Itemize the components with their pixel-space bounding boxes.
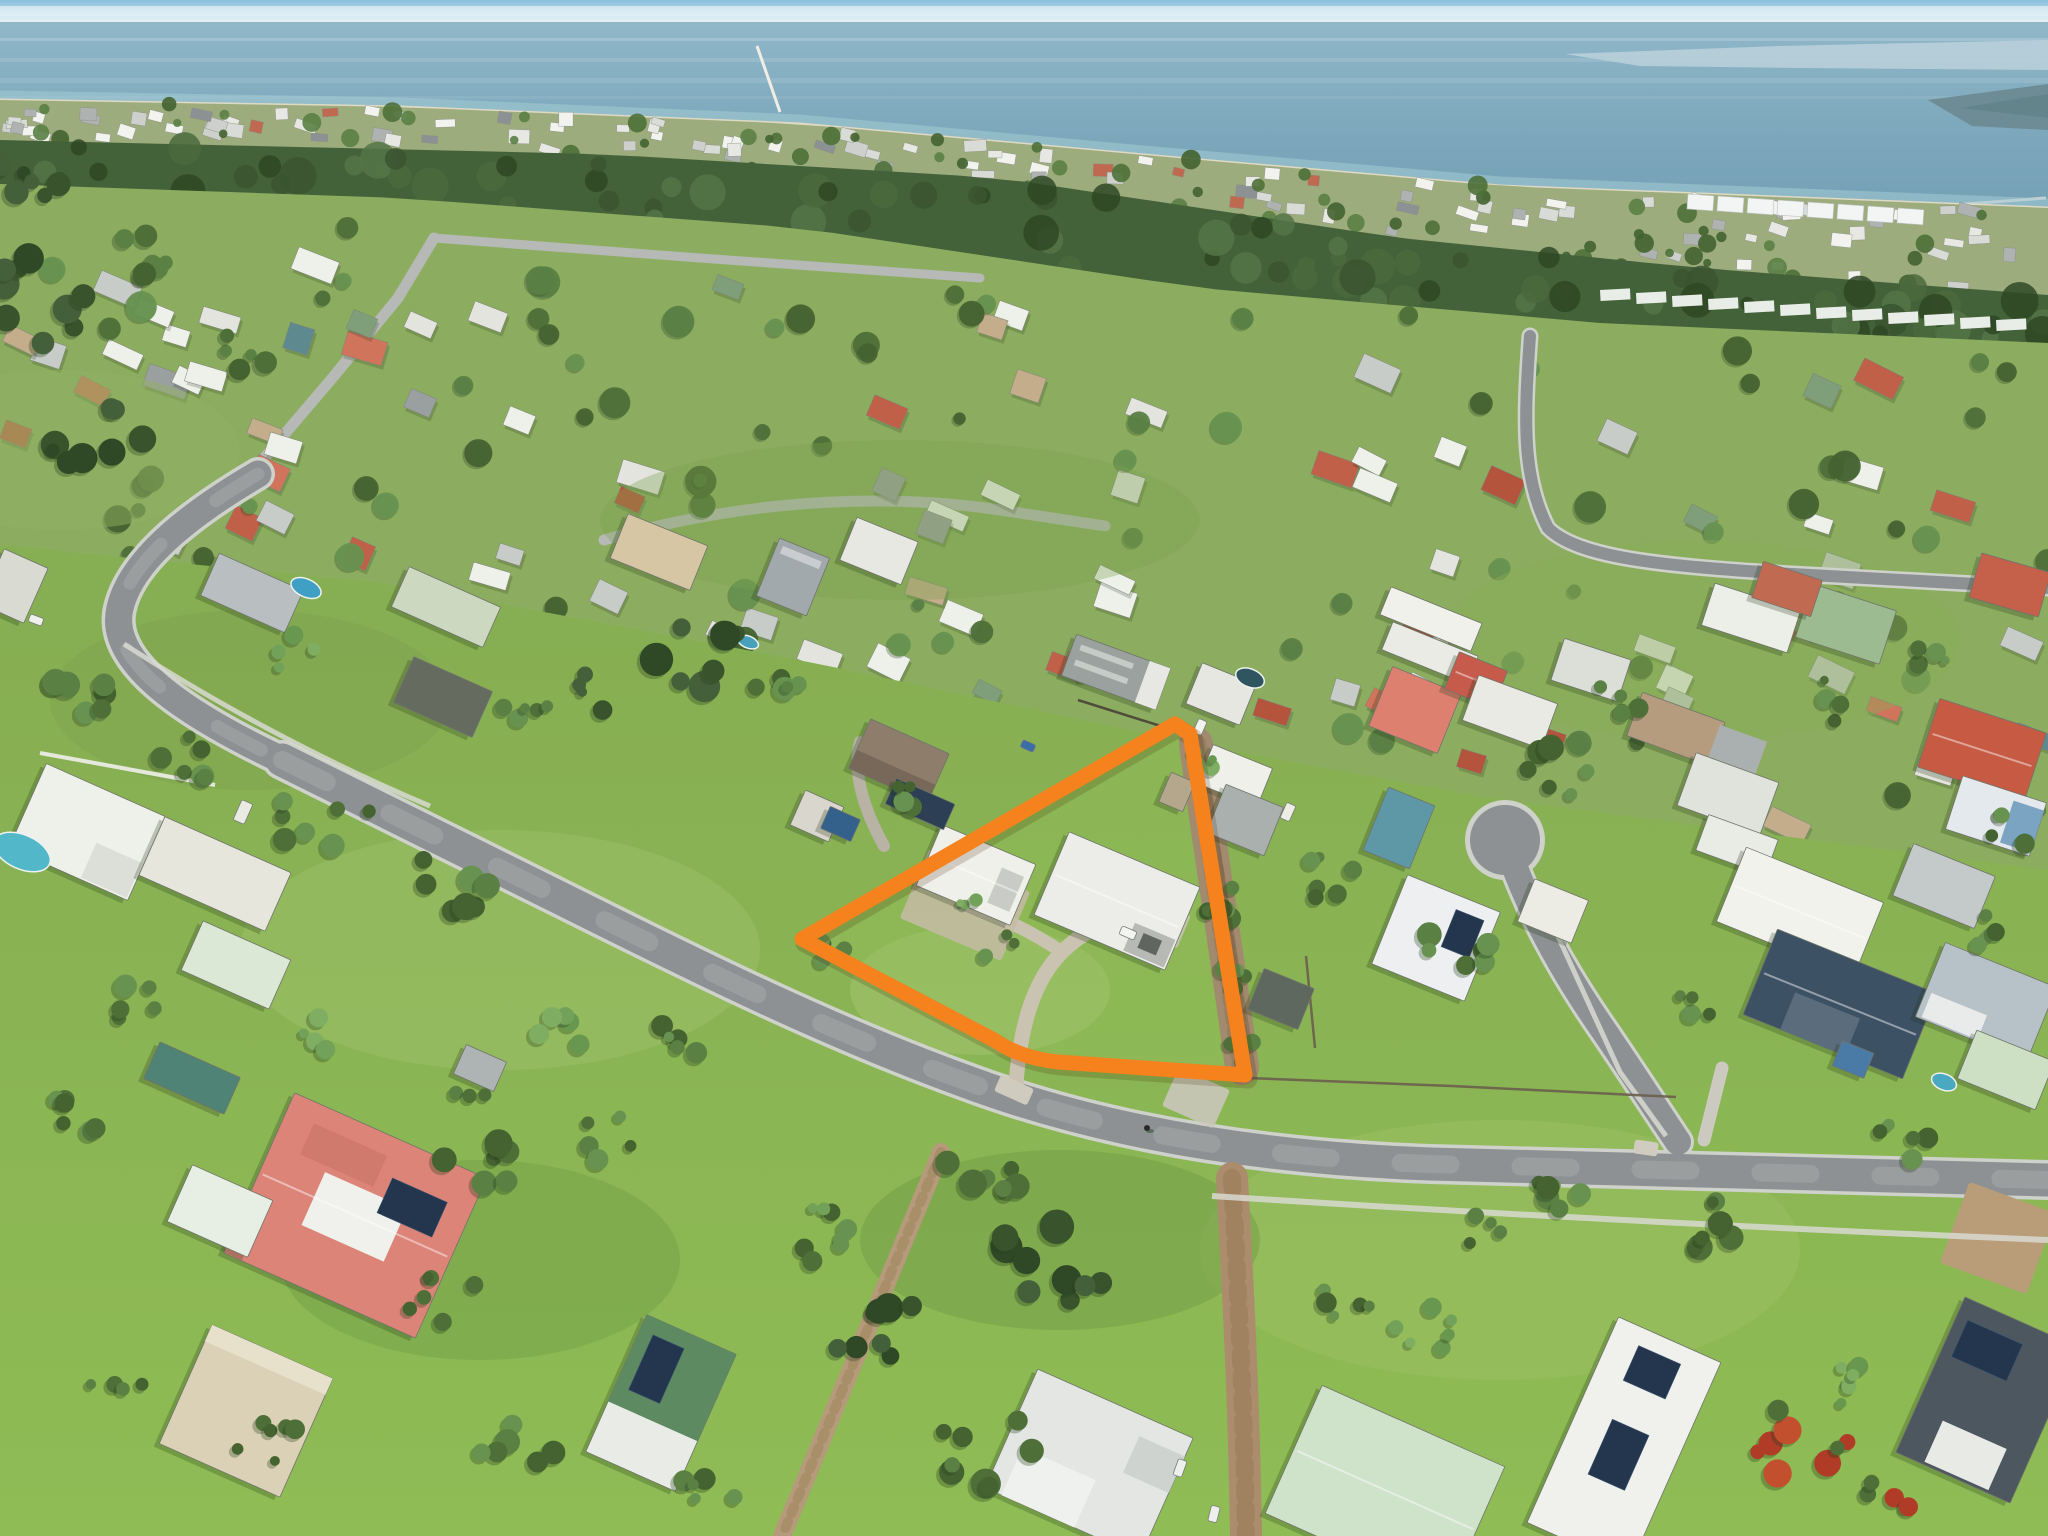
aerial-photo-stage	[0, 0, 2048, 1536]
person-on-road	[1144, 1125, 1150, 1131]
aerial-photograph	[0, 0, 2048, 1536]
